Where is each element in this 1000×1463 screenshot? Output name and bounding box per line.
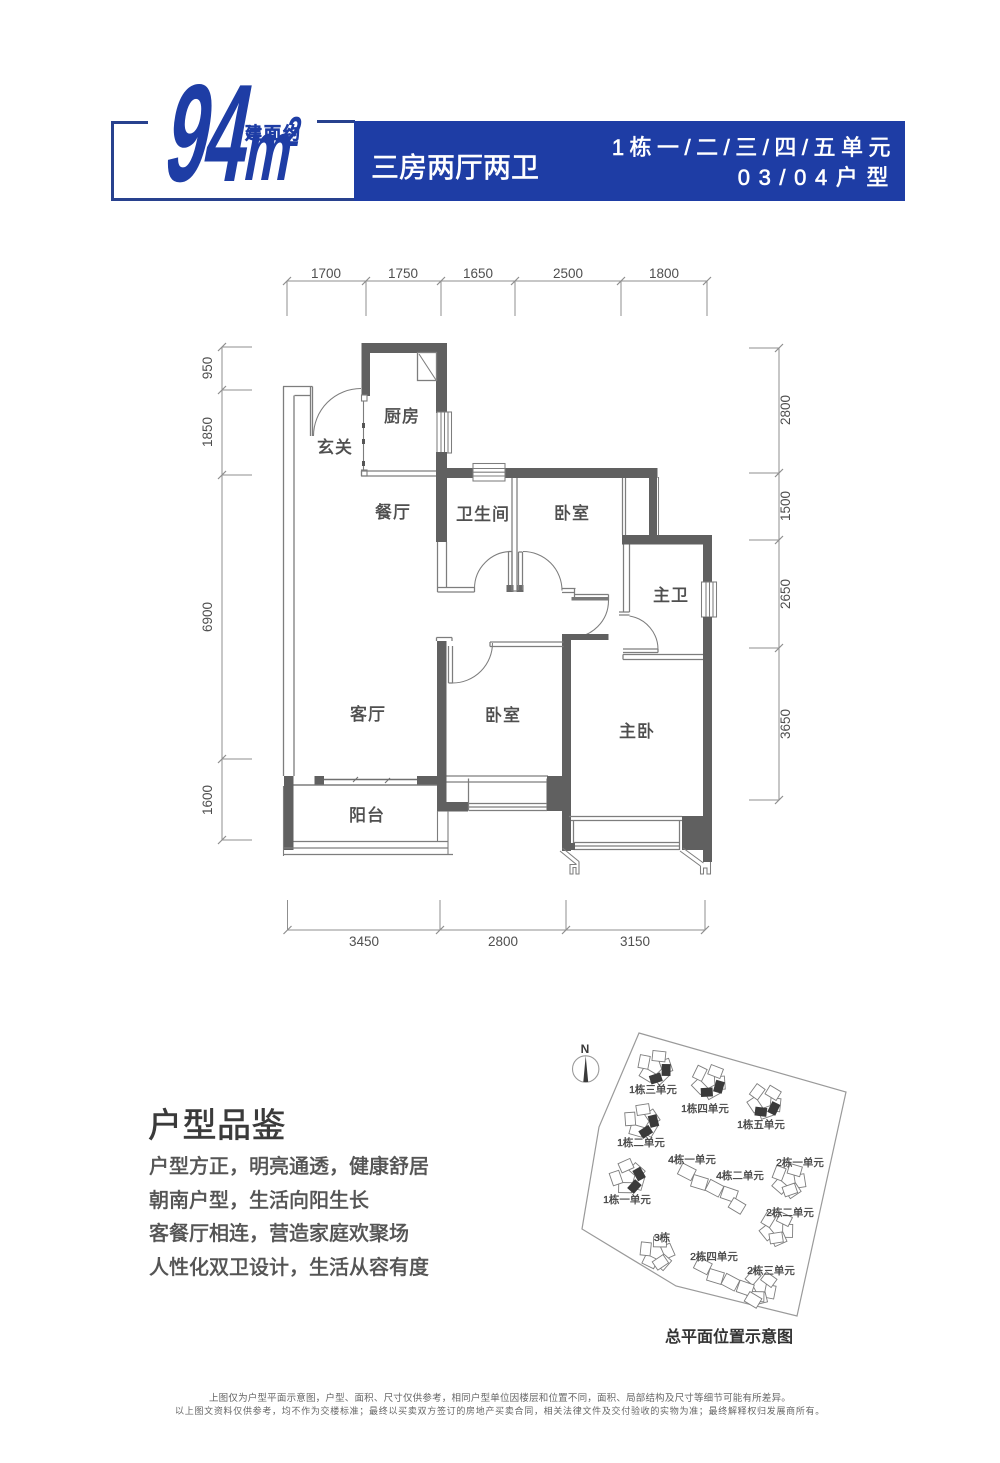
svg-text:1800: 1800: [649, 266, 679, 281]
svg-text:1750: 1750: [388, 266, 418, 281]
svg-text:1栋二单元: 1栋二单元: [617, 1136, 665, 1149]
svg-text:1600: 1600: [200, 785, 215, 815]
svg-text:卧室: 卧室: [554, 504, 590, 523]
svg-text:2栋四单元: 2栋四单元: [690, 1250, 738, 1263]
svg-text:客厅: 客厅: [350, 705, 386, 724]
svg-text:1栋五单元: 1栋五单元: [737, 1118, 785, 1131]
svg-text:餐厅: 餐厅: [375, 503, 411, 522]
svg-text:卫生间: 卫生间: [456, 505, 510, 524]
svg-text:3650: 3650: [778, 709, 793, 739]
svg-text:厨房: 厨房: [384, 407, 420, 426]
svg-text:3栋: 3栋: [654, 1231, 671, 1244]
svg-text:玄关: 玄关: [317, 438, 353, 457]
svg-text:1栋三单元: 1栋三单元: [629, 1083, 677, 1096]
svg-text:4栋二单元: 4栋二单元: [716, 1169, 764, 1182]
svg-text:1500: 1500: [778, 491, 793, 521]
svg-text:3450: 3450: [349, 934, 379, 949]
svg-text:2栋一单元: 2栋一单元: [776, 1156, 824, 1169]
svg-text:主卧: 主卧: [619, 722, 655, 741]
svg-text:950: 950: [200, 357, 215, 380]
svg-text:1650: 1650: [463, 266, 493, 281]
svg-text:卧室: 卧室: [485, 706, 521, 725]
svg-text:3150: 3150: [620, 934, 650, 949]
svg-text:2500: 2500: [553, 266, 583, 281]
svg-text:2800: 2800: [778, 395, 793, 425]
svg-text:阳台: 阳台: [349, 806, 385, 825]
svg-text:N: N: [581, 1042, 590, 1056]
svg-text:主卫: 主卫: [653, 586, 689, 605]
svg-text:1栋一单元: 1栋一单元: [603, 1193, 651, 1206]
svg-text:1栋四单元: 1栋四单元: [681, 1102, 729, 1115]
svg-text:2栋三单元: 2栋三单元: [747, 1264, 795, 1277]
svg-text:2800: 2800: [488, 934, 518, 949]
svg-text:1850: 1850: [200, 417, 215, 447]
svg-text:1700: 1700: [311, 266, 341, 281]
svg-text:6900: 6900: [200, 602, 215, 632]
svg-text:2栋二单元: 2栋二单元: [766, 1206, 814, 1219]
svg-text:2650: 2650: [778, 579, 793, 609]
svg-text:4栋一单元: 4栋一单元: [668, 1153, 716, 1166]
